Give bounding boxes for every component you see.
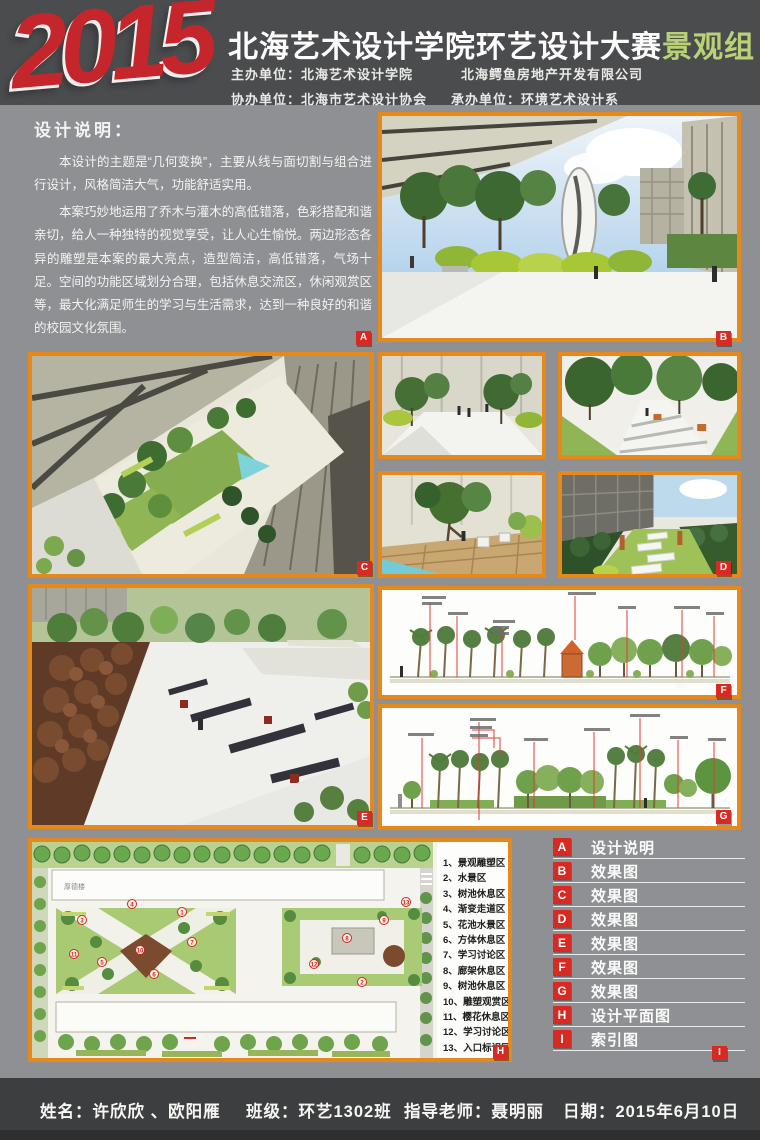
footer-date: 日期：2015年6月10日	[563, 1098, 739, 1122]
index-row-h: H 设计平面图	[553, 1004, 745, 1027]
index-letter-c: C	[553, 886, 571, 904]
co-value: 北海市艺术设计协会	[301, 92, 427, 107]
index-label-i: 索引图	[591, 1029, 639, 1050]
render-grid-image-3	[382, 475, 542, 574]
legend-item: 4、渐变走道区	[443, 902, 508, 917]
legend-item: 1、景观雕塑区	[443, 856, 508, 871]
class-label: 班级：	[246, 1103, 299, 1121]
section-badge-d: D	[716, 561, 731, 575]
legend-item: 5、花池水景区	[443, 918, 508, 933]
host2-value: 北海鳄鱼房地产开发有限公司	[461, 67, 643, 82]
host-value: 北海艺术设计学院	[301, 67, 413, 82]
render-grid-frame-3	[378, 471, 546, 578]
section-badge-f: F	[716, 684, 731, 698]
index-label-e: 效果图	[591, 933, 639, 954]
section-badge-i: I	[712, 1046, 727, 1060]
host-label: 主办单位：	[231, 67, 301, 82]
design-description-para2: 本案巧妙地运用了乔木与灌木的高低错落，色彩搭配和谐亲切，给人一种独特的视觉享受，…	[34, 201, 372, 340]
index-letter-d: D	[553, 910, 571, 928]
index-label-f: 效果图	[591, 957, 639, 978]
legend-item: 7、学习讨论区	[443, 948, 508, 963]
date-label: 日期：	[563, 1103, 616, 1121]
section-badge-c: C	[357, 561, 372, 575]
co-label: 协办单位：	[231, 92, 301, 107]
render-grid-image-4	[562, 475, 737, 574]
render-e-frame	[28, 584, 374, 829]
index-label-g: 效果图	[591, 981, 639, 1002]
year-logo: 2015	[5, 0, 214, 113]
footer-class: 班级：环艺1302班	[246, 1098, 392, 1122]
section-badge-h: H	[493, 1045, 508, 1059]
index-letter-b: B	[553, 862, 571, 880]
index-row-e: E 效果图	[553, 932, 745, 955]
design-description-para1: 本设计的主题是“几何变换”，主要从线与面切割与组合进行设计，风格简洁大气，功能舒…	[34, 151, 372, 197]
title-main: 北海艺术设计学院环艺设计大赛	[228, 31, 662, 64]
legend-item: 12、学习讨论区	[443, 1025, 508, 1040]
undertake-value: 环境艺术设计系	[521, 92, 619, 107]
teacher-value: 聂明丽	[492, 1103, 545, 1121]
organizer-line-2: 协办单位：北海市艺术设计协会承办单位：环境艺术设计系	[231, 89, 619, 108]
render-grid	[378, 352, 741, 578]
render-c-image	[32, 356, 370, 574]
index-letter-f: F	[553, 958, 571, 976]
legend-item: 11、樱花休息区	[443, 1010, 508, 1025]
legend-item: 3、树池休息区	[443, 887, 508, 902]
legend-item: 2、水景区	[443, 871, 508, 886]
plan-building-label: 厚德楼	[64, 882, 85, 891]
render-grid-image-1	[382, 356, 542, 455]
organizer-line-1: 主办单位：北海艺术设计学院北海鳄鱼房地产开发有限公司	[231, 64, 643, 83]
section-badge-e: E	[357, 811, 372, 825]
render-grid-frame-1	[378, 352, 546, 459]
plan-legend: 1、景观雕塑区 2、水景区 3、树池休息区 4、渐变走道区 5、花池水景区 6、…	[437, 842, 508, 1058]
legend-item: 8、廊架休息区	[443, 964, 508, 979]
section-badge-a: A	[356, 331, 371, 345]
poster-title: 北海艺术设计学院环艺设计大赛景观组	[228, 22, 755, 66]
index-letter-h: H	[553, 1006, 571, 1024]
name-label: 姓名：	[40, 1103, 93, 1121]
index-letter-a: A	[553, 838, 571, 856]
poster-footer: 姓名：许欣欣 、欧阳雁 班级：环艺1302班 指导老师：聂明丽 日期：2015年…	[0, 1078, 760, 1140]
name-value: 许欣欣 、欧阳雁	[93, 1103, 221, 1121]
plan-marker: 13	[403, 901, 410, 907]
index-label-c: 效果图	[591, 885, 639, 906]
index-row-b: B 效果图	[553, 860, 745, 883]
section-diagram-g-image	[382, 708, 737, 826]
index-row-c: C 效果图	[553, 884, 745, 907]
undertake-label: 承办单位：	[451, 92, 521, 107]
index-letter-i: I	[553, 1030, 571, 1048]
index-label-b: 效果图	[591, 861, 639, 882]
index-label-h: 设计平面图	[591, 1005, 671, 1026]
index-row-a: A 设计说明	[553, 836, 745, 859]
legend-item: 6、方体休息区	[443, 933, 508, 948]
title-group: 景观组	[662, 31, 755, 64]
render-e-image	[32, 588, 370, 825]
section-diagram-f-frame	[378, 586, 741, 699]
render-b-frame	[378, 112, 741, 342]
plan-marker: 10	[137, 949, 144, 955]
plan-marker: 12	[311, 963, 318, 969]
master-plan-frame: 厚德楼	[28, 838, 512, 1062]
date-value: 2015年6月10日	[616, 1103, 740, 1121]
section-badge-b: B	[716, 331, 731, 345]
footer-teacher: 指导老师：聂明丽	[404, 1098, 544, 1122]
legend-item: 9、树池休息区	[443, 979, 508, 994]
index-label-a: 设计说明	[591, 837, 655, 858]
render-b-image	[382, 116, 737, 338]
index-letter-e: E	[553, 934, 571, 952]
index-row-f: F 效果图	[553, 956, 745, 979]
design-description: 设计说明： 本设计的主题是“几何变换”，主要从线与面切割与组合进行设计，风格简洁…	[34, 116, 372, 344]
design-description-heading: 设计说明：	[34, 116, 372, 141]
legend-item: 10、雕塑观赏区	[443, 995, 508, 1010]
index-label-d: 效果图	[591, 909, 639, 930]
section-diagram-g-frame	[378, 704, 741, 830]
render-grid-image-2	[562, 356, 737, 455]
section-badge-g: G	[716, 810, 731, 824]
footer-name: 姓名：许欣欣 、欧阳雁	[40, 1098, 221, 1122]
teacher-label: 指导老师：	[404, 1103, 492, 1121]
index-panel: A 设计说明 B 效果图 C 效果图 D 效果图 E 效果图 F 效果图 G 效…	[553, 836, 745, 1052]
class-value: 环艺1302班	[299, 1103, 392, 1121]
render-grid-frame-4	[558, 471, 741, 578]
render-c-frame	[28, 352, 374, 578]
index-row-g: G 效果图	[553, 980, 745, 1003]
section-diagram-f-image	[382, 590, 737, 695]
index-row-d: D 效果图	[553, 908, 745, 931]
render-grid-frame-2	[558, 352, 741, 459]
competition-poster: 2015 北海艺术设计学院环艺设计大赛景观组 主办单位：北海艺术设计学院北海鳄鱼…	[0, 0, 760, 1140]
index-letter-g: G	[553, 982, 571, 1000]
plan-marker: 11	[71, 953, 78, 959]
